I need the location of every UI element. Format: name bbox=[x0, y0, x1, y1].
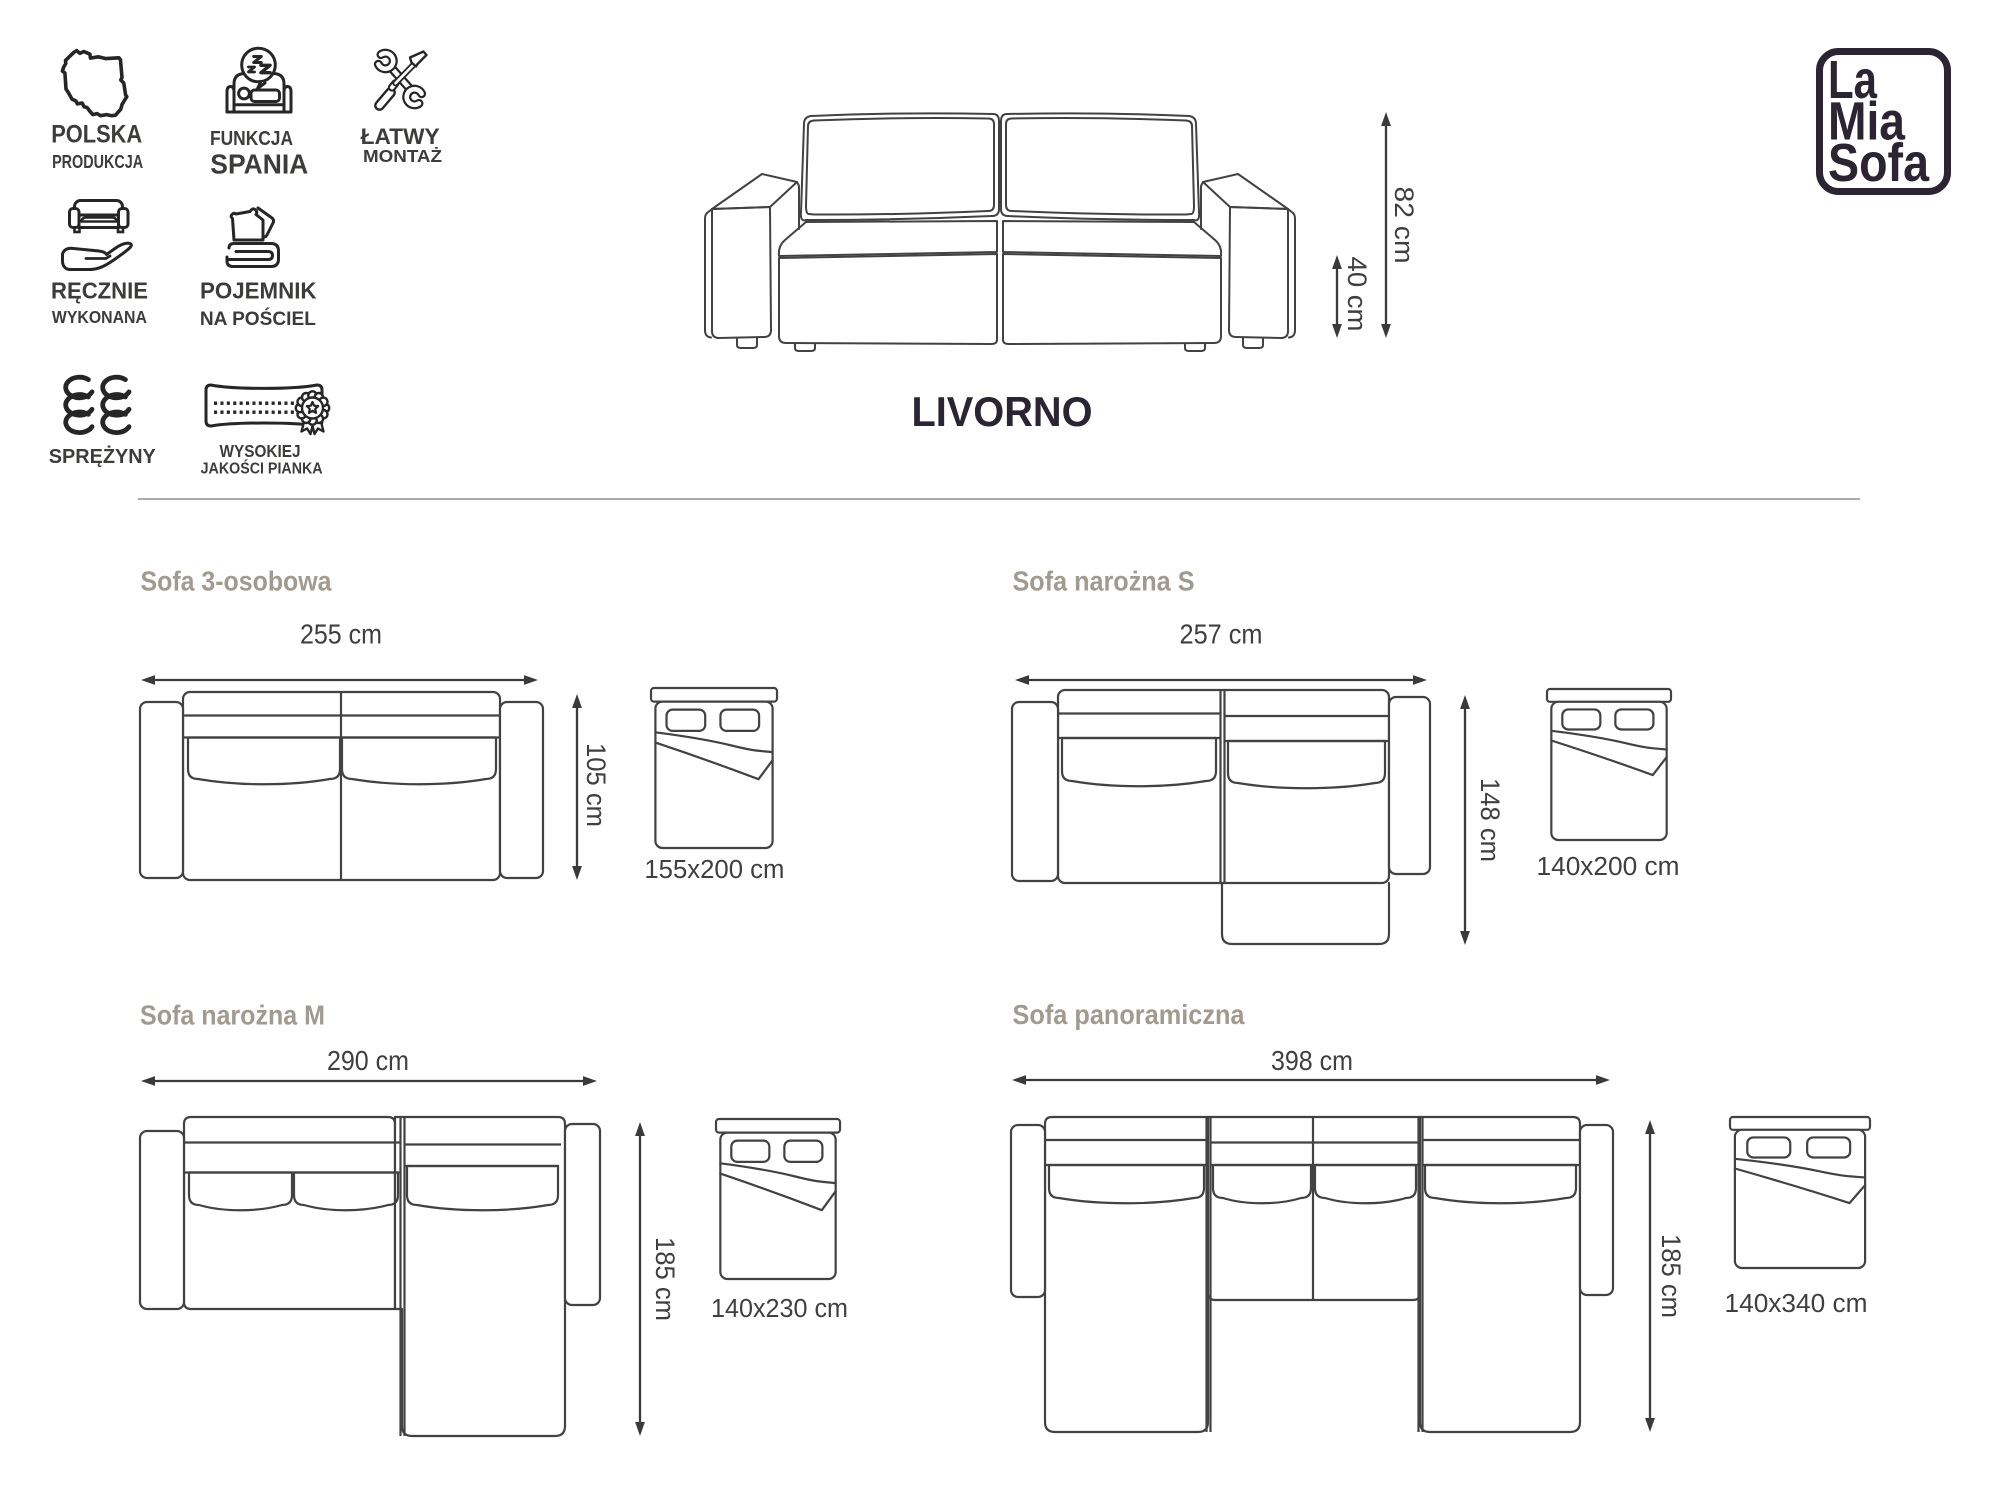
svg-text:SPANIA: SPANIA bbox=[210, 149, 308, 180]
svg-text:LIVORNO: LIVORNO bbox=[912, 388, 1093, 435]
svg-text:Sofa: Sofa bbox=[1828, 133, 1930, 193]
svg-text:Sofa narożna M: Sofa narożna M bbox=[140, 1000, 325, 1031]
svg-text:148 cm: 148 cm bbox=[1475, 778, 1505, 862]
svg-text:MONTAŻ: MONTAŻ bbox=[363, 146, 442, 166]
svg-text:NA POŚCIEL: NA POŚCIEL bbox=[200, 306, 316, 330]
svg-text:POLSKA: POLSKA bbox=[51, 121, 142, 149]
svg-text:POJEMNIK: POJEMNIK bbox=[200, 278, 317, 304]
svg-text:40 cm: 40 cm bbox=[1342, 257, 1372, 332]
svg-text:255 cm: 255 cm bbox=[300, 618, 382, 649]
svg-text:140x230 cm: 140x230 cm bbox=[711, 1295, 848, 1323]
svg-text:290 cm: 290 cm bbox=[327, 1045, 409, 1076]
svg-text:140x340 cm: 140x340 cm bbox=[1725, 1290, 1868, 1318]
svg-text:WYSOKIEJ: WYSOKIEJ bbox=[220, 441, 301, 461]
svg-text:Sofa narożna S: Sofa narożna S bbox=[1013, 566, 1195, 597]
svg-text:398 cm: 398 cm bbox=[1271, 1045, 1353, 1076]
svg-text:JAKOŚCI PIANKA: JAKOŚCI PIANKA bbox=[201, 458, 323, 477]
svg-text:Sofa 3-osobowa: Sofa 3-osobowa bbox=[141, 566, 332, 597]
svg-text:SPRĘŻYNY: SPRĘŻYNY bbox=[49, 445, 156, 468]
svg-text:185 cm: 185 cm bbox=[650, 1237, 680, 1321]
svg-text:257 cm: 257 cm bbox=[1180, 618, 1263, 649]
svg-text:155x200 cm: 155x200 cm bbox=[644, 856, 784, 884]
svg-text:Sofa panoramiczna: Sofa panoramiczna bbox=[1013, 999, 1245, 1030]
svg-text:185 cm: 185 cm bbox=[1656, 1234, 1686, 1318]
svg-text:PRODUKCJA: PRODUKCJA bbox=[52, 152, 143, 172]
svg-text:105 cm: 105 cm bbox=[581, 743, 611, 827]
svg-text:140x200 cm: 140x200 cm bbox=[1537, 853, 1680, 881]
svg-text:ŁATWY: ŁATWY bbox=[361, 124, 440, 149]
svg-text:RĘCZNIE: RĘCZNIE bbox=[51, 277, 148, 303]
svg-text:FUNKCJA: FUNKCJA bbox=[210, 128, 293, 150]
svg-text:WYKONANA: WYKONANA bbox=[52, 307, 147, 327]
svg-text:82 cm: 82 cm bbox=[1389, 187, 1419, 264]
